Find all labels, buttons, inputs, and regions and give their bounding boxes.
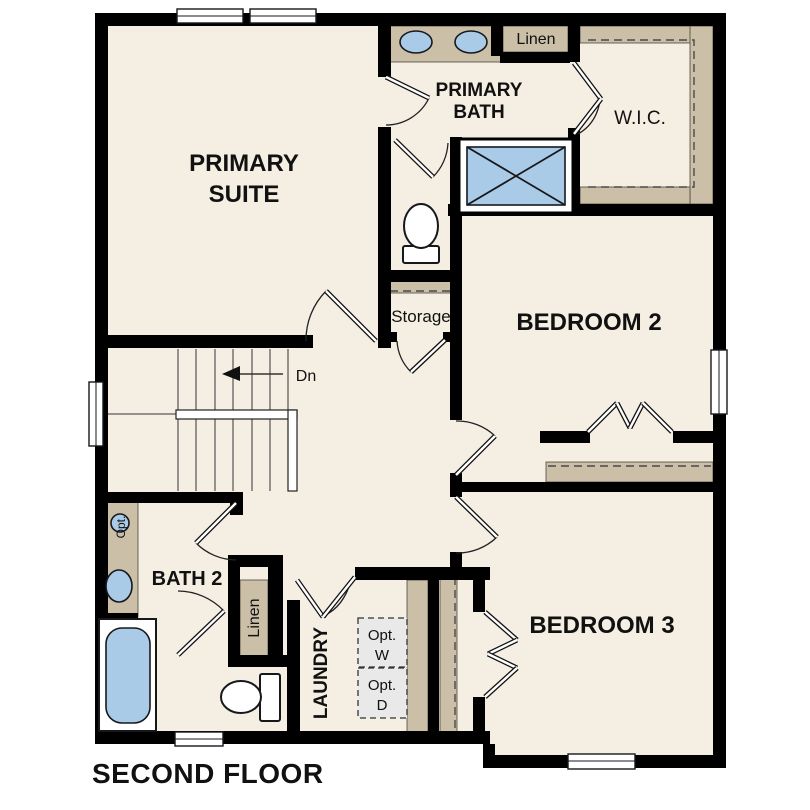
bath2-opt-label: Opt. bbox=[114, 516, 128, 539]
bath2-label: BATH 2 bbox=[152, 568, 223, 590]
window-top-left bbox=[177, 9, 243, 23]
primary-sink-left bbox=[400, 31, 432, 53]
linen-top-label: Linen bbox=[516, 31, 555, 48]
stair-dn-label: Dn bbox=[296, 368, 316, 385]
primary-toilet bbox=[403, 204, 439, 263]
opt-washer-label-line1: Opt. bbox=[368, 627, 396, 644]
window-bedroom3 bbox=[568, 754, 635, 769]
floor-plan-page: PRIMARY SUITE PRIMARY BATH Linen W.I.C. … bbox=[0, 0, 810, 810]
opt-dryer-label-line2: D bbox=[377, 697, 388, 714]
bath2-sink bbox=[106, 570, 132, 602]
bedroom2-closet-shelf bbox=[546, 462, 713, 482]
window-left-stair bbox=[89, 382, 103, 446]
primary-sink-right bbox=[455, 31, 487, 53]
window-top-right bbox=[250, 9, 316, 23]
primary-suite-label-line1: PRIMARY bbox=[189, 150, 299, 177]
wic-label: W.I.C. bbox=[614, 108, 666, 129]
storage-label: Storage bbox=[391, 307, 451, 326]
stair-rail-vertical bbox=[288, 410, 297, 491]
primary-suite-label-line2: SUITE bbox=[209, 181, 280, 208]
opt-dryer-label-line1: Opt. bbox=[368, 677, 396, 694]
laundry-counter-strip bbox=[407, 580, 428, 732]
laundry-label: LAUNDRY bbox=[311, 627, 332, 720]
primary-shower bbox=[459, 139, 573, 213]
wic-shelf-bottom bbox=[580, 187, 690, 204]
window-bedroom2 bbox=[711, 350, 727, 414]
primary-bath-label-line2: BATH bbox=[453, 102, 504, 123]
bedroom3-label: BEDROOM 3 bbox=[529, 612, 674, 639]
window-bath2 bbox=[175, 732, 223, 746]
primary-bath-label-line1: PRIMARY bbox=[436, 80, 523, 101]
opt-washer-label-line2: W bbox=[375, 647, 390, 664]
bath2-tub bbox=[99, 619, 156, 731]
linen-lower-label: Linen bbox=[246, 598, 263, 637]
floor-plan-drawing: PRIMARY SUITE PRIMARY BATH Linen W.I.C. … bbox=[0, 0, 810, 810]
floor-title: SECOND FLOOR bbox=[92, 758, 324, 789]
bedroom2-label: BEDROOM 2 bbox=[516, 309, 661, 336]
stair-rail-horizontal bbox=[176, 410, 297, 419]
